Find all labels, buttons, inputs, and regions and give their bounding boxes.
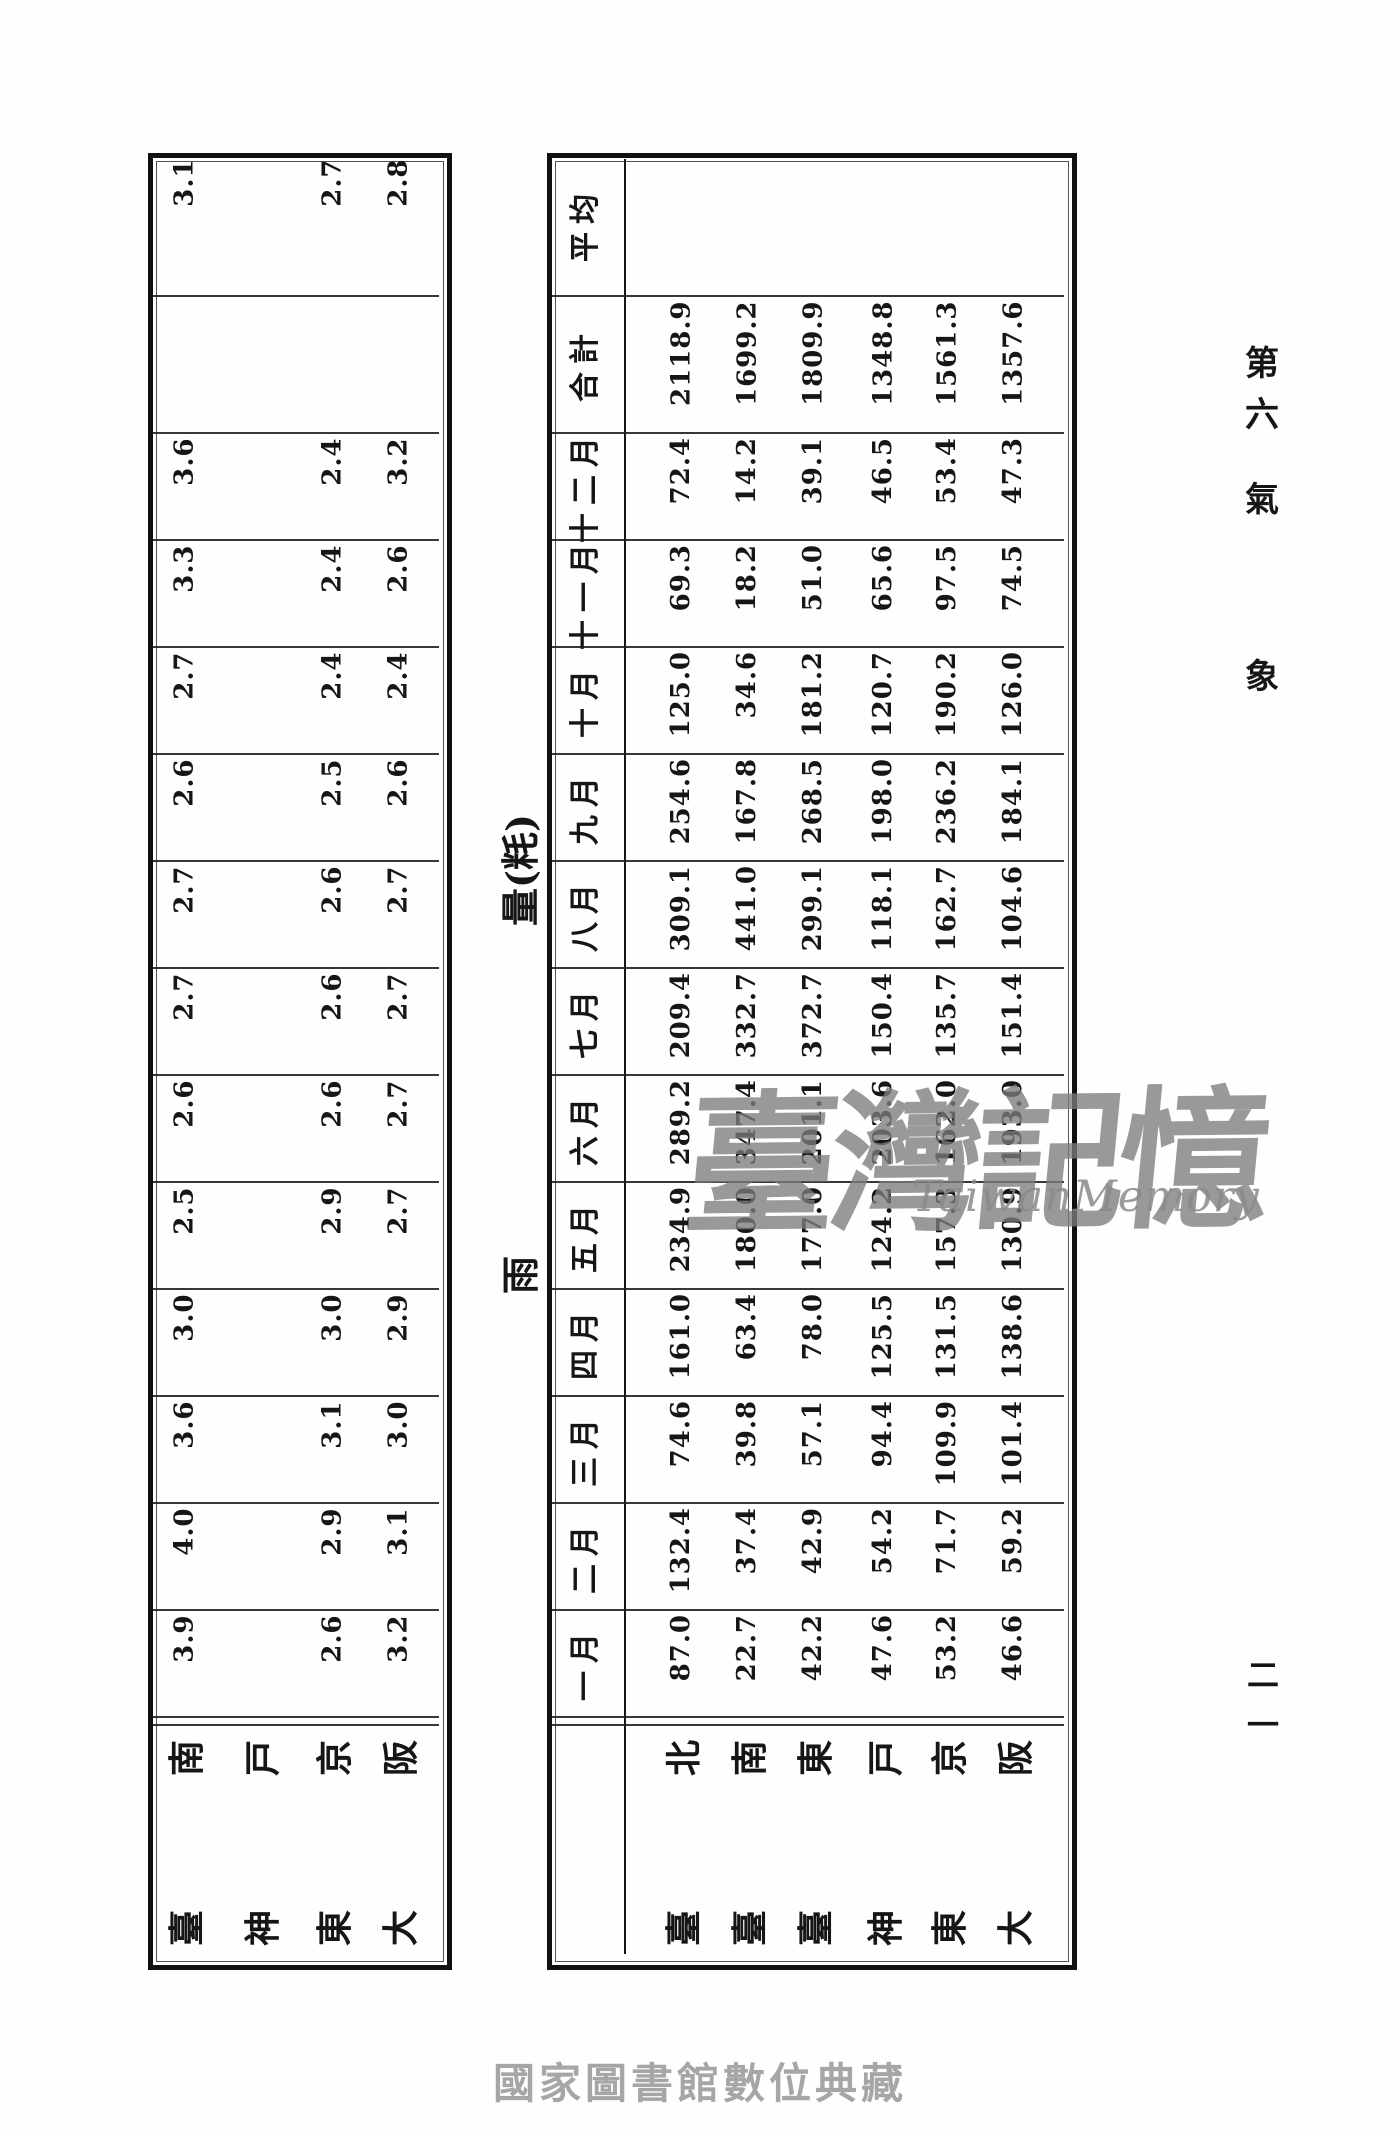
secondary-value-cell: 3.0 (170, 1293, 198, 1388)
page-number: 二 一 (1246, 1650, 1280, 1750)
secondary-value-cell: 2.4 (318, 651, 346, 746)
rain-value-cell: 34.6 (733, 651, 761, 751)
running-head: 第 六 氣 象 (1243, 336, 1281, 698)
row-line (153, 1609, 439, 1611)
rain-value-cell: 47.6 (869, 1614, 897, 1714)
rain-value-cell: 254.6 (667, 758, 695, 858)
secondary-value-cell: 2.6 (318, 972, 346, 1067)
rain-value-cell: 57.1 (799, 1400, 827, 1500)
rain-value-cell: 167.8 (733, 758, 761, 858)
city-label-char: 南 (721, 1740, 773, 1776)
rain-value-cell: 372.7 (799, 972, 827, 1072)
rain-value-cell: 124.2 (869, 1186, 897, 1286)
rain-value-cell: 46.5 (869, 437, 897, 537)
secondary-value-cell: 2.6 (384, 544, 412, 639)
row-line (153, 1716, 439, 1718)
row-line (153, 860, 439, 862)
city-label-char: 神 (234, 1910, 286, 1946)
rain-value-cell: 234.9 (667, 1186, 695, 1286)
row-line (552, 1074, 1064, 1076)
secondary-value-cell: 2.9 (318, 1186, 346, 1281)
row-line (552, 1181, 1064, 1183)
rain-value-cell: 125.5 (869, 1293, 897, 1393)
city-label-char: 北 (655, 1740, 707, 1776)
row-line (552, 1716, 1064, 1718)
city-label-char: 京 (306, 1740, 358, 1776)
rain-value-cell: 39.1 (799, 437, 827, 537)
secondary-value-cell: 2.7 (384, 1186, 412, 1281)
city-label-char: 阪 (987, 1740, 1039, 1776)
rain-value-cell: 198.0 (869, 758, 897, 858)
rain-value-cell: 109.9 (933, 1400, 961, 1500)
rain-value-cell: 151.4 (999, 972, 1027, 1072)
row-line (552, 1502, 1064, 1504)
rain-value-cell: 161.0 (667, 1293, 695, 1393)
secondary-value-cell: 2.8 (384, 158, 412, 253)
running-head-char: 第 (1243, 336, 1281, 385)
secondary-value-cell: 2.5 (170, 1186, 198, 1281)
rain-value-cell: 65.6 (869, 544, 897, 644)
rain-value-cell: 22.7 (733, 1614, 761, 1714)
row-line (552, 1609, 1064, 1611)
row-line (153, 1502, 439, 1504)
rain-value-cell: 125.0 (667, 651, 695, 751)
city-label-char: 大 (987, 1910, 1039, 1946)
rain-value-cell: 184.1 (999, 758, 1027, 858)
rain-value-cell: 74.6 (667, 1400, 695, 1500)
rain-value-cell: 299.1 (799, 865, 827, 965)
secondary-value-cell: 2.7 (170, 972, 198, 1067)
secondary-value-cell: 3.1 (318, 1400, 346, 1495)
page-number-char: 一 (1246, 1700, 1280, 1746)
row-line (153, 1288, 439, 1290)
row-line (153, 295, 439, 297)
rain-value-cell: 201.1 (799, 1079, 827, 1179)
secondary-value-cell: 2.6 (318, 1079, 346, 1174)
running-head-char: 六 (1243, 387, 1281, 436)
row-line (153, 967, 439, 969)
rain-value-cell: 78.0 (799, 1293, 827, 1393)
rain-value-cell: 120.7 (869, 651, 897, 751)
rain-value-cell: 54.2 (869, 1507, 897, 1607)
row-line (153, 1724, 439, 1726)
row-line (552, 1395, 1064, 1397)
footer-caption: 國家圖書館數位典藏 (0, 2050, 1400, 2111)
rain-value-cell: 63.4 (733, 1293, 761, 1393)
rain-value-cell: 131.5 (933, 1293, 961, 1393)
city-label-char: 東 (306, 1910, 358, 1946)
rain-value-cell: 236.2 (933, 758, 961, 858)
secondary-value-cell: 2.7 (384, 972, 412, 1067)
rain-value-cell: 1348.8 (869, 300, 897, 435)
row-line (153, 432, 439, 434)
city-label-char: 臺 (655, 1910, 707, 1946)
rain-value-cell: 177.0 (799, 1186, 827, 1286)
rain-value-cell: 14.2 (733, 437, 761, 537)
secondary-value-cell: 2.5 (318, 758, 346, 853)
row-line (552, 295, 1064, 297)
rain-value-cell: 162.7 (933, 865, 961, 965)
rain-value-cell: 138.6 (999, 1293, 1027, 1393)
rain-value-cell: 1357.6 (999, 300, 1027, 435)
rain-value-cell: 1699.2 (733, 300, 761, 435)
rain-value-cell: 203.6 (869, 1079, 897, 1179)
secondary-value-cell: 3.2 (384, 1614, 412, 1709)
secondary-value-cell: 3.1 (170, 158, 198, 253)
rain-city-label: 臺東 (791, 1740, 835, 1946)
row-line (552, 1288, 1064, 1290)
city-label-char: 京 (921, 1740, 973, 1776)
secondary-value-cell: 2.6 (384, 758, 412, 853)
city-label-char: 戸 (234, 1740, 286, 1776)
row-line (153, 1395, 439, 1397)
rain-city-label: 臺南 (725, 1740, 769, 1946)
secondary-value-cell: 2.9 (318, 1507, 346, 1602)
secondary-value-cell: 4.0 (170, 1507, 198, 1602)
secondary-value-cell: 2.4 (318, 544, 346, 639)
row-line (552, 967, 1064, 969)
rain-value-cell: 180.0 (733, 1186, 761, 1286)
secondary-city-label: 東京 (310, 1740, 354, 1946)
city-label-char: 南 (158, 1740, 210, 1776)
section-title-lead: 雨 (490, 1256, 545, 1294)
secondary-value-cell: 2.6 (318, 1614, 346, 1709)
rain-value-cell: 118.1 (869, 865, 897, 965)
rain-value-cell: 71.7 (933, 1507, 961, 1607)
rain-value-cell: 332.7 (733, 972, 761, 1072)
scanned-page: 雨 量(粍) 平均3.12.72.8合計2118.91699.21809.913… (0, 0, 1400, 2130)
secondary-value-cell: 3.0 (318, 1293, 346, 1388)
rain-value-cell: 51.0 (799, 544, 827, 644)
rain-value-cell: 289.2 (667, 1079, 695, 1179)
rain-value-cell: 309.1 (667, 865, 695, 965)
rain-value-cell: 47.3 (999, 437, 1027, 537)
secondary-city-label: 臺南 (162, 1740, 206, 1946)
rain-value-cell: 53.4 (933, 437, 961, 537)
secondary-value-cell: 2.6 (318, 865, 346, 960)
section-title: 雨 量(粍) (496, 814, 538, 1294)
secondary-value-cell: 3.1 (384, 1507, 412, 1602)
rain-value-cell: 190.2 (933, 651, 961, 751)
secondary-value-cell: 3.3 (170, 544, 198, 639)
rain-city-label: 神戸 (861, 1740, 905, 1946)
row-line (153, 646, 439, 648)
secondary-value-cell: 3.6 (170, 437, 198, 532)
rain-value-cell: 130.9 (999, 1186, 1027, 1286)
rain-value-cell: 1561.3 (933, 300, 961, 435)
city-label-char: 阪 (372, 1740, 424, 1776)
rain-value-cell: 162.0 (933, 1079, 961, 1179)
rain-value-cell: 347.4 (733, 1079, 761, 1179)
rain-city-label: 臺北 (659, 1740, 703, 1946)
rain-value-cell: 59.2 (999, 1507, 1027, 1607)
secondary-value-cell: 2.7 (384, 865, 412, 960)
secondary-value-cell: 3.6 (170, 1400, 198, 1495)
row-line (153, 1181, 439, 1183)
rain-value-cell: 104.6 (999, 865, 1027, 965)
row-line (552, 539, 1064, 541)
secondary-value-cell: 2.4 (384, 651, 412, 746)
rain-value-cell: 94.4 (869, 1400, 897, 1500)
rain-value-cell: 150.4 (869, 972, 897, 1072)
rain-value-cell: 441.0 (733, 865, 761, 965)
rain-value-cell: 209.4 (667, 972, 695, 1072)
secondary-value-cell: 3.0 (384, 1400, 412, 1495)
secondary-value-cell: 2.7 (318, 158, 346, 253)
city-label-char: 臺 (787, 1910, 839, 1946)
running-head-char: 氣 (1243, 472, 1281, 521)
month-label: 合計 (568, 299, 604, 429)
running-head-char: 象 (1243, 649, 1281, 698)
secondary-city-label: 神戸 (238, 1740, 282, 1946)
rain-city-label: 東京 (925, 1740, 969, 1946)
rain-value-cell: 39.8 (733, 1400, 761, 1500)
section-title-unit: 量(粍) (490, 814, 545, 926)
rain-value-cell: 37.4 (733, 1507, 761, 1607)
city-label-char: 東 (787, 1740, 839, 1776)
rain-value-cell: 193.0 (999, 1079, 1027, 1179)
secondary-value-cell: 2.6 (170, 758, 198, 853)
row-line (552, 1724, 1064, 1726)
rain-value-cell: 87.0 (667, 1614, 695, 1714)
rain-value-cell: 69.3 (667, 544, 695, 644)
secondary-value-cell: 2.7 (170, 865, 198, 960)
rain-value-cell: 53.2 (933, 1614, 961, 1714)
rain-value-cell: 1809.9 (799, 300, 827, 435)
rain-value-cell: 18.2 (733, 544, 761, 644)
city-label-char: 大 (372, 1910, 424, 1946)
secondary-city-label: 大阪 (376, 1740, 420, 1946)
rain-value-cell: 72.4 (667, 437, 695, 537)
rain-value-cell: 101.4 (999, 1400, 1027, 1500)
rain-value-cell: 74.5 (999, 544, 1027, 644)
rain-value-cell: 126.0 (999, 651, 1027, 751)
month-label: 平均 (568, 159, 604, 289)
rain-value-cell: 42.9 (799, 1507, 827, 1607)
secondary-value-cell: 3.2 (384, 437, 412, 532)
rain-value-cell: 157.3 (933, 1186, 961, 1286)
rain-value-cell: 97.5 (933, 544, 961, 644)
rain-value-cell: 46.6 (999, 1614, 1027, 1714)
row-line (153, 1074, 439, 1076)
rain-value-cell: 132.4 (667, 1507, 695, 1607)
city-label-char: 戸 (857, 1740, 909, 1776)
row-line (552, 753, 1064, 755)
rain-value-cell: 181.2 (799, 651, 827, 751)
rain-value-cell: 42.2 (799, 1614, 827, 1714)
row-line (552, 646, 1064, 648)
city-label-char: 東 (921, 1910, 973, 1946)
secondary-value-cell: 2.6 (170, 1079, 198, 1174)
row-line (153, 539, 439, 541)
rain-value-cell: 2118.9 (667, 300, 695, 435)
rain-value-cell: 268.5 (799, 758, 827, 858)
month-label: 一月 (568, 1598, 604, 1728)
rainfall-table-header-separator (624, 159, 626, 1954)
secondary-value-cell: 2.9 (384, 1293, 412, 1388)
row-line (552, 860, 1064, 862)
rain-value-cell: 135.7 (933, 972, 961, 1072)
city-label-char: 臺 (721, 1910, 773, 1946)
row-line (153, 753, 439, 755)
secondary-value-cell: 2.7 (170, 651, 198, 746)
secondary-value-cell: 2.7 (384, 1079, 412, 1174)
page-number-char: 二 (1246, 1650, 1280, 1696)
city-label-char: 臺 (158, 1910, 210, 1946)
rain-city-label: 大阪 (991, 1740, 1035, 1946)
secondary-value-cell: 3.9 (170, 1614, 198, 1709)
city-label-char: 神 (857, 1910, 909, 1946)
secondary-value-cell: 2.4 (318, 437, 346, 532)
